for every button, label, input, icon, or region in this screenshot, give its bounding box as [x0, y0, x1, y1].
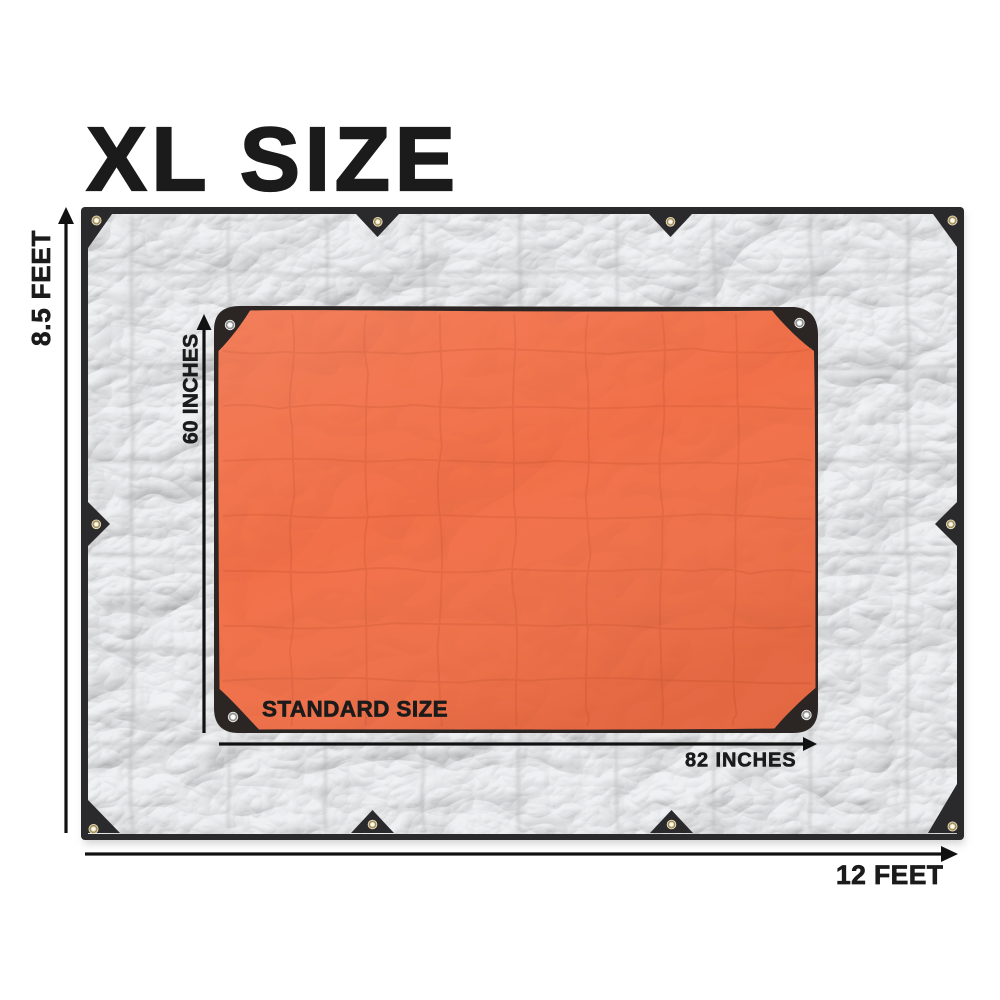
svg-text:12 FEET: 12 FEET: [836, 860, 943, 890]
svg-text:60 INCHES: 60 INCHES: [180, 334, 203, 444]
svg-text:XL SIZE: XL SIZE: [87, 110, 460, 210]
svg-text:8.5 FEET: 8.5 FEET: [26, 230, 56, 346]
svg-text:82 INCHES: 82 INCHES: [685, 750, 796, 772]
svg-text:STANDARD SIZE: STANDARD SIZE: [262, 697, 448, 722]
